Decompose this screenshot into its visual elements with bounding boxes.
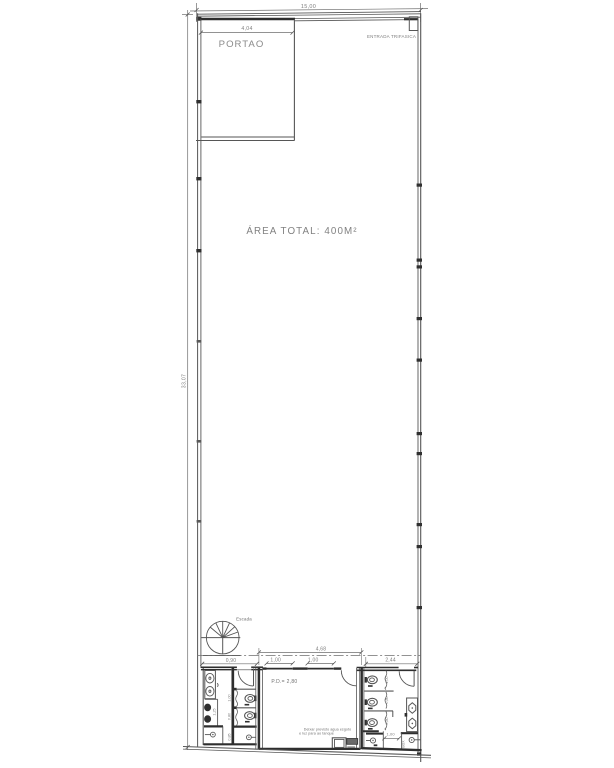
svg-text:1,00: 1,00 (385, 676, 389, 683)
svg-text:e luz para ao tanque: e luz para ao tanque (299, 731, 334, 735)
svg-text:0,90: 0,90 (226, 658, 237, 664)
svg-text:4,04: 4,04 (241, 26, 252, 32)
svg-text:2,44: 2,44 (385, 658, 396, 664)
svg-text:0,80: 0,80 (385, 717, 389, 724)
svg-text:1,25: 1,25 (213, 708, 217, 715)
svg-text:1,00: 1,00 (387, 731, 396, 736)
svg-text:33,07: 33,07 (181, 374, 187, 388)
svg-text:P.D.= 2,80: P.D.= 2,80 (271, 679, 297, 685)
svg-text:ENTRADA TRIFASICA: ENTRADA TRIFASICA (367, 34, 416, 39)
svg-text:0,85: 0,85 (227, 733, 231, 740)
svg-text:0,80: 0,80 (385, 696, 389, 703)
svg-text:ÁREA TOTAL: 400M²: ÁREA TOTAL: 400M² (246, 226, 357, 237)
svg-text:BOX: BOX (401, 740, 405, 748)
svg-text:1,00: 1,00 (308, 658, 319, 664)
svg-text:15,00: 15,00 (301, 4, 316, 10)
svg-text:4,68: 4,68 (316, 646, 327, 652)
svg-text:0,80: 0,80 (227, 713, 231, 720)
svg-text:1,00: 1,00 (270, 658, 281, 664)
svg-text:PORTAO: PORTAO (219, 39, 265, 50)
svg-text:Escada: Escada (236, 617, 252, 622)
svg-text:1,00: 1,00 (227, 694, 231, 701)
